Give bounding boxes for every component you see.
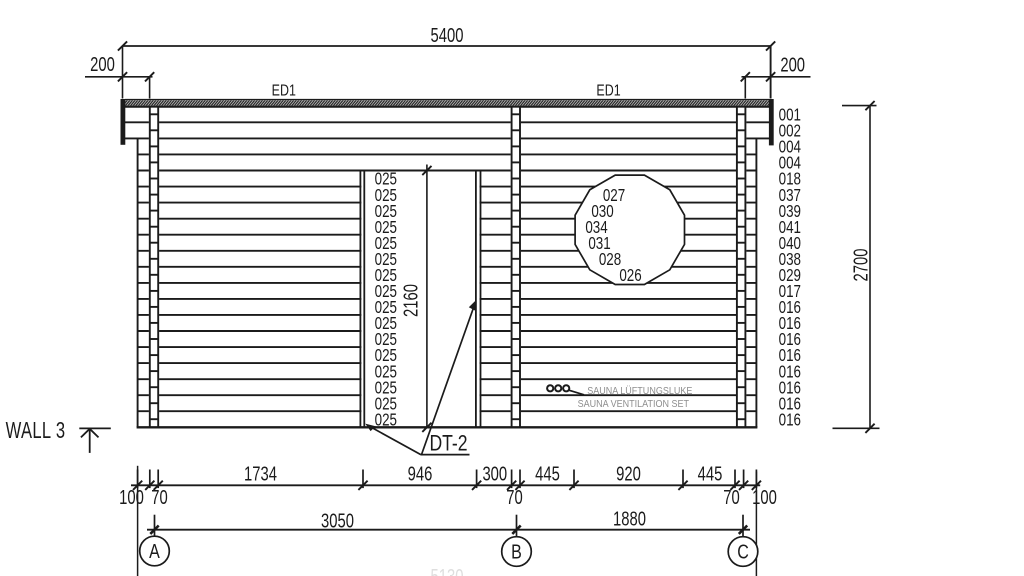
svg-text:SAUNA VENTILATION SET: SAUNA VENTILATION SET <box>578 398 690 409</box>
svg-text:2160: 2160 <box>399 284 422 317</box>
svg-text:025: 025 <box>375 411 397 430</box>
svg-text:DT-2: DT-2 <box>429 432 467 456</box>
svg-text:920: 920 <box>616 462 641 485</box>
svg-text:70: 70 <box>151 486 168 509</box>
svg-text:026: 026 <box>619 267 641 286</box>
svg-text:1880: 1880 <box>613 507 646 530</box>
svg-text:A: A <box>149 541 160 563</box>
svg-text:B: B <box>511 541 522 563</box>
svg-text:2700: 2700 <box>849 248 872 281</box>
svg-text:SAUNA LÜFTUNGSLUKE: SAUNA LÜFTUNGSLUKE <box>587 385 692 396</box>
svg-text:445: 445 <box>535 462 560 485</box>
svg-text:3050: 3050 <box>321 509 354 532</box>
svg-text:445: 445 <box>698 462 723 485</box>
svg-text:5400: 5400 <box>431 24 464 47</box>
svg-text:ED1: ED1 <box>272 82 296 100</box>
svg-text:C: C <box>737 541 749 563</box>
svg-text:028: 028 <box>599 250 621 269</box>
svg-text:1734: 1734 <box>244 462 277 485</box>
svg-text:300: 300 <box>482 462 507 485</box>
svg-text:200: 200 <box>90 53 115 76</box>
svg-text:ED1: ED1 <box>596 82 620 100</box>
svg-text:WALL 3: WALL 3 <box>6 418 66 443</box>
svg-text:5130: 5130 <box>431 565 464 576</box>
svg-text:200: 200 <box>780 53 805 76</box>
svg-text:70: 70 <box>506 486 523 509</box>
svg-text:016: 016 <box>779 411 801 430</box>
svg-text:70: 70 <box>723 486 740 509</box>
svg-text:100: 100 <box>119 486 144 509</box>
svg-text:946: 946 <box>408 462 433 485</box>
